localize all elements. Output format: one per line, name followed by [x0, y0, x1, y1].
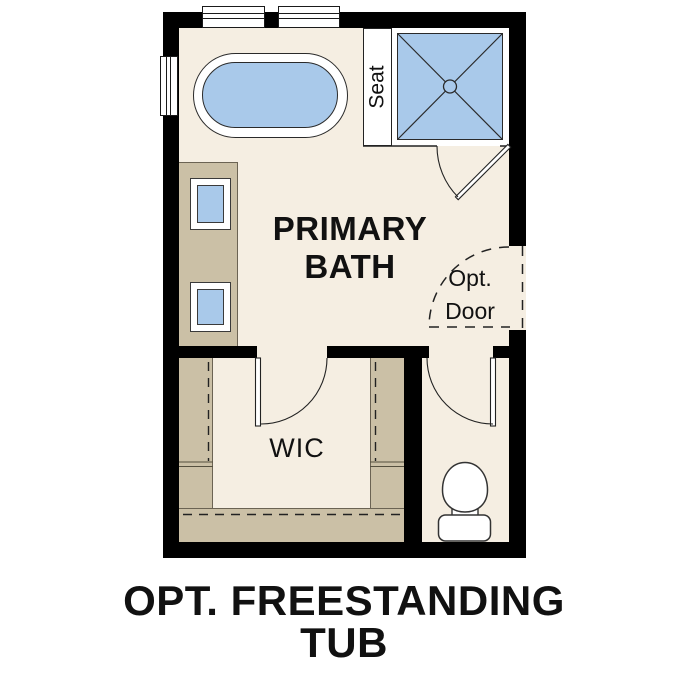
shower-pan: [397, 33, 503, 140]
vanity-counter: [179, 162, 238, 347]
wic-shelf-left: [179, 358, 213, 508]
window-mullion: [166, 57, 167, 115]
sink-basin: [190, 178, 231, 230]
sink-bowl: [197, 289, 224, 325]
plan-caption: OPT. FREESTANDING TUB: [109, 580, 579, 664]
wall-wic-toilet: [404, 346, 422, 542]
wic-shelf-bottom: [179, 508, 404, 542]
window-mullion: [203, 13, 264, 14]
wic-label: WIC: [247, 433, 347, 463]
window-mullion: [279, 13, 339, 14]
wall-right-lower: [509, 330, 526, 558]
seat-label: Seat: [367, 65, 388, 108]
wic-shelf-right: [370, 358, 404, 508]
primary-bath-label: PRIMARY BATH: [250, 210, 450, 286]
wall-bath-toilet: [493, 346, 509, 358]
opt-door-label: Opt. Door: [425, 262, 515, 328]
window-mullion: [279, 18, 339, 19]
wall-right-upper: [509, 12, 526, 246]
sink-basin: [190, 282, 231, 332]
sink-bowl: [197, 185, 224, 223]
window-icon: [160, 56, 178, 116]
window-icon: [278, 6, 340, 28]
wall-bath-wic: [179, 346, 257, 358]
floor-plan-diagram: PRIMARY BATH WIC Opt. Door Seat OPT. FRE…: [0, 0, 687, 687]
window-icon: [202, 6, 265, 28]
tub-basin: [202, 62, 338, 128]
window-mullion: [203, 18, 264, 19]
wall-bottom: [163, 542, 526, 558]
window-mullion: [170, 57, 171, 115]
freestanding-tub: [193, 53, 348, 138]
